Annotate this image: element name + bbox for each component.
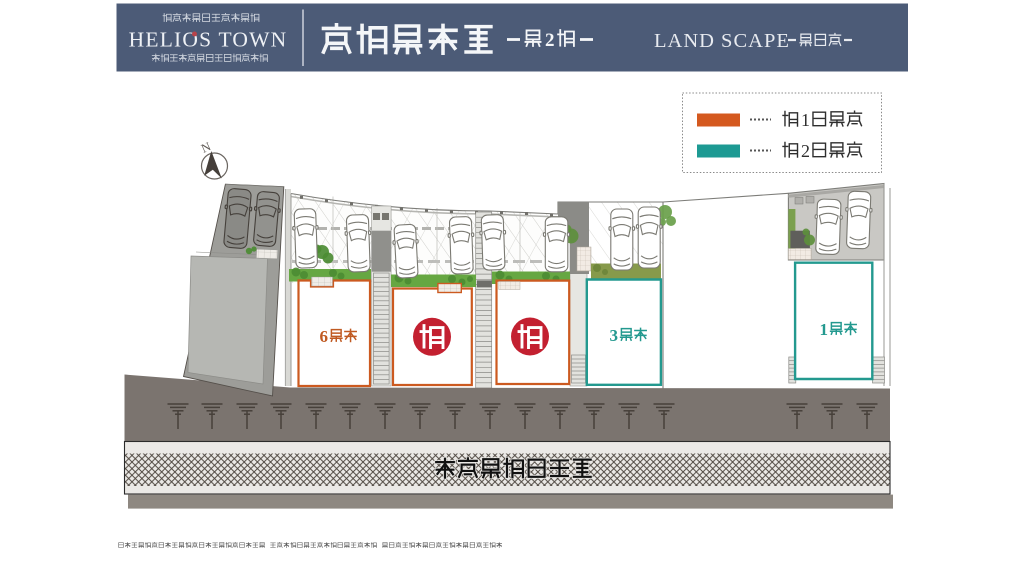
svg-text:3: 3 [610, 326, 619, 345]
svg-text:HELIOS TOWN: HELIOS TOWN [129, 28, 288, 52]
svg-text:1: 1 [820, 320, 829, 339]
svg-text:1: 1 [801, 110, 810, 130]
svg-text:2: 2 [545, 30, 555, 51]
svg-text:2: 2 [801, 141, 810, 161]
svg-text:LAND SCAPE: LAND SCAPE [654, 30, 790, 52]
svg-text:6: 6 [320, 327, 329, 346]
